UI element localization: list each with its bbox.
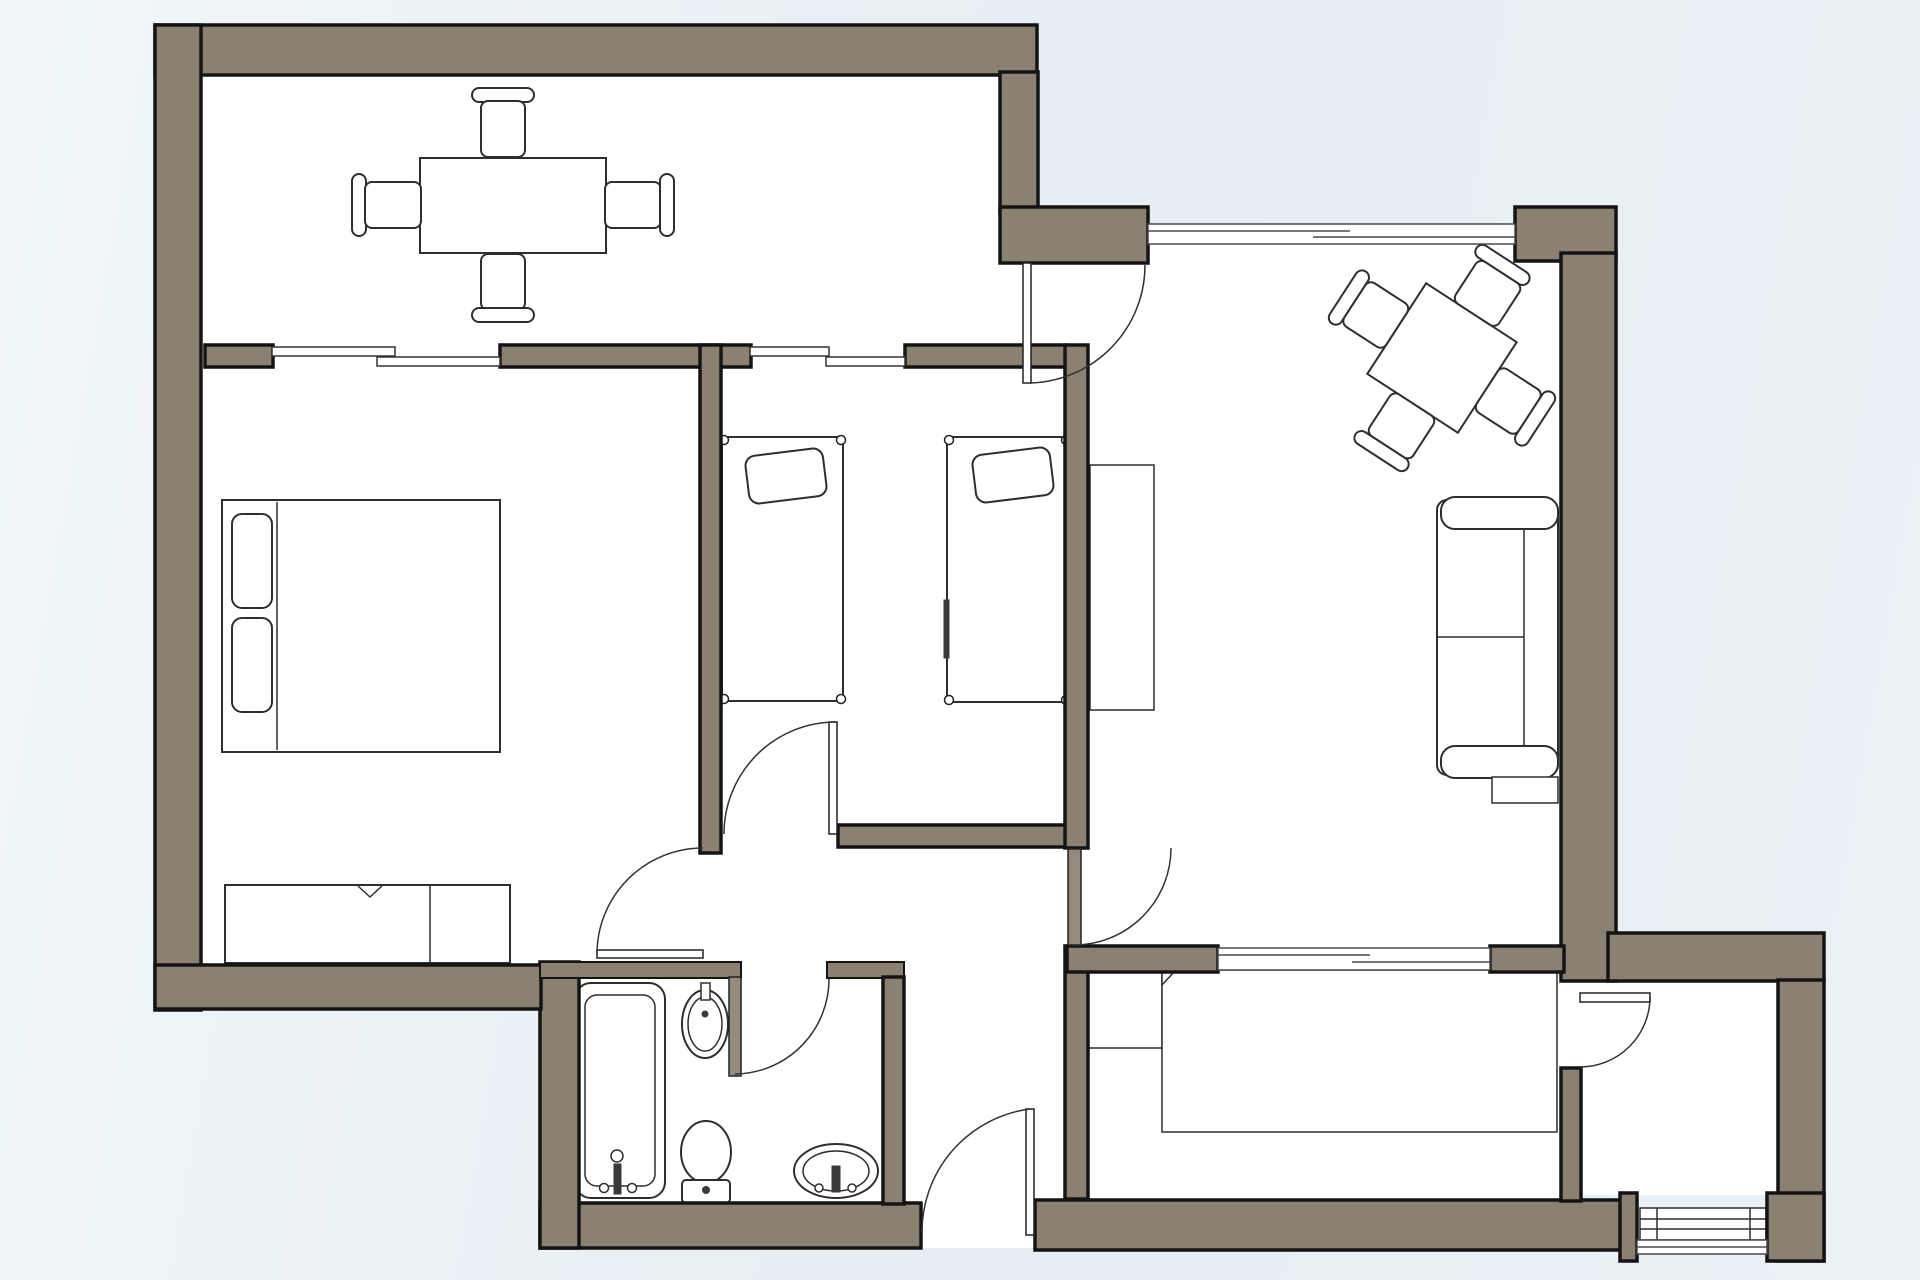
bed-tick	[944, 600, 949, 658]
bed-post	[837, 436, 846, 445]
door-leaf-kids-room	[829, 722, 837, 834]
chair-seat-west	[365, 182, 421, 228]
wall-central-upper	[1065, 345, 1088, 848]
window-living-north	[1148, 224, 1515, 244]
pillow	[232, 514, 272, 608]
chair-back-east	[660, 174, 674, 236]
floor-plan-canvas	[0, 0, 1920, 1280]
sliding-door-panel	[377, 357, 500, 366]
door-leaf-living	[1068, 849, 1081, 945]
bed-post	[837, 695, 846, 704]
wall-right-elbow	[1608, 933, 1824, 981]
radiator	[1640, 1208, 1766, 1240]
pillow	[744, 447, 827, 504]
wardrobe	[225, 885, 510, 963]
cabinet	[1090, 465, 1154, 710]
wall-bedroom-east	[700, 345, 721, 853]
wall-bath-south	[540, 1203, 921, 1248]
wall-kids-south	[838, 825, 1071, 847]
bed-post	[945, 436, 954, 445]
toilet-button	[703, 1187, 710, 1194]
wall-top	[155, 25, 1037, 75]
window-pass-through	[1218, 948, 1490, 970]
chair-back-north	[472, 88, 534, 102]
tub-faucet	[611, 1150, 623, 1162]
basin-handle	[815, 1184, 823, 1192]
door-leaf-entry	[1580, 993, 1650, 1002]
sink-drain	[702, 1011, 708, 1017]
door-leaf-bedroom	[597, 950, 703, 958]
wall-bedroom-south	[155, 965, 541, 1009]
floor-entry	[1558, 981, 1780, 1195]
tub-handle	[600, 1184, 609, 1193]
sink-tap	[701, 983, 710, 1000]
pillow	[971, 446, 1054, 503]
wall-mid-3	[905, 345, 1066, 367]
wall-kitchen-south	[1035, 1200, 1625, 1250]
chair-seat-north	[481, 101, 525, 157]
wall-kitchen-north-right	[1490, 946, 1564, 972]
chair-seat-east	[605, 182, 661, 228]
chair-back-south	[472, 308, 534, 322]
bed-post	[945, 696, 954, 705]
wall-kitchen-north-left	[1067, 946, 1218, 972]
side-table	[1492, 777, 1558, 803]
tub-faucet-stem	[614, 1164, 621, 1194]
sofa-arm	[1441, 497, 1558, 529]
sliding-door-panel	[826, 357, 905, 366]
wall-mid-1	[205, 345, 273, 367]
door-leaf-bathroom	[729, 977, 741, 1076]
sliding-door-panel	[272, 347, 395, 356]
wall-right	[1561, 253, 1616, 981]
fridge-block	[1088, 972, 1162, 1048]
wall-bath-east	[883, 977, 904, 1204]
wall-radiator-stub	[1620, 1193, 1637, 1261]
tub-handle	[628, 1184, 637, 1193]
floor-plan-drawing	[0, 0, 1920, 1280]
basin-tap	[832, 1166, 840, 1192]
toilet-bowl	[681, 1121, 731, 1183]
wall-entry-west	[1561, 1068, 1581, 1201]
kitchen-counter	[1162, 970, 1557, 1132]
sofa-arm	[1441, 746, 1558, 778]
wall-bath-west	[540, 962, 579, 1248]
chair-seat-south	[481, 254, 525, 310]
wall-central-lower	[1065, 946, 1088, 1199]
wall-bath-north-left	[540, 962, 741, 978]
wall-left	[155, 25, 201, 1010]
door-leaf-front	[1026, 1109, 1034, 1235]
wall-dining-east-jog	[1000, 72, 1038, 212]
chair-back-west	[352, 174, 366, 236]
sliding-door-panel	[750, 347, 829, 356]
dining-table	[420, 158, 606, 253]
basin-handle	[848, 1184, 856, 1192]
wall-dining-east-foot	[1000, 207, 1148, 263]
door-leaf-living-passage	[1023, 263, 1031, 383]
wall-entry-se-corner	[1767, 1193, 1824, 1261]
pillow	[232, 618, 272, 712]
